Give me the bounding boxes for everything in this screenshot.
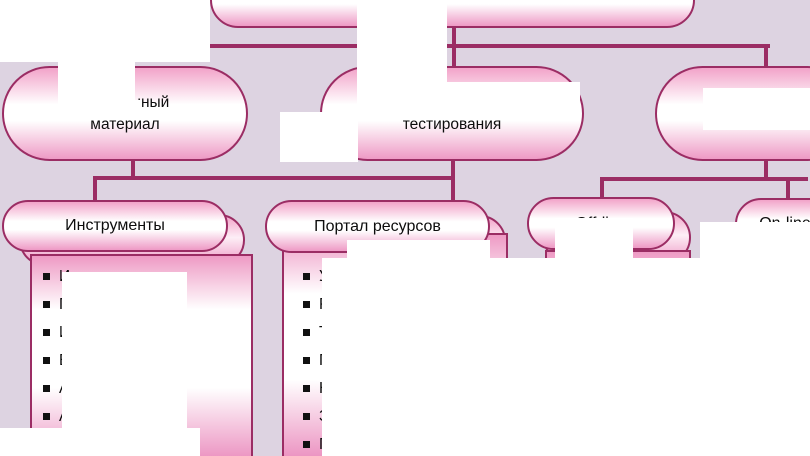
instruments-label: Инструменты [65,217,165,235]
connector-row2-left-horizontal [93,176,455,180]
portal-label: Портал ресурсов [314,218,441,236]
bullet-square-icon [303,273,310,280]
bullet-square-icon [303,329,310,336]
bullet-square-icon [43,385,50,392]
occlusion-block [555,218,633,258]
occlusion-block [0,0,210,62]
bullet-square-icon [303,357,310,364]
occlusion-block [447,82,580,110]
connector-portal-drop [451,159,455,202]
connector-instruments-drop [93,176,97,202]
bullet-square-icon [43,301,50,308]
diagram-canvas: Лекционный материал Блоки тестирования И… [0,0,810,456]
connector-right-drop [764,44,768,68]
connector-offline-drop [600,177,604,199]
bullet-square-icon [43,273,50,280]
occlusion-block [500,258,810,456]
occlusion-block [703,88,810,130]
occlusion-block [322,258,512,456]
occlusion-block [62,272,187,434]
bullet-square-icon [303,301,310,308]
occlusion-block [357,0,447,108]
occlusion-block [280,112,358,162]
root-node [210,0,695,28]
connector-row2-right-horizontal [600,177,808,181]
bullet-square-icon [43,413,50,420]
bullet-square-icon [303,413,310,420]
bullet-square-icon [303,385,310,392]
connector-row1-horizontal [130,44,770,48]
bullet-square-icon [303,441,310,448]
bullet-square-icon [43,357,50,364]
instruments-node: Инструменты [2,200,228,252]
occlusion-block [700,222,810,258]
connector-online-drop [786,177,790,200]
occlusion-block [58,100,142,119]
bullet-square-icon [43,329,50,336]
